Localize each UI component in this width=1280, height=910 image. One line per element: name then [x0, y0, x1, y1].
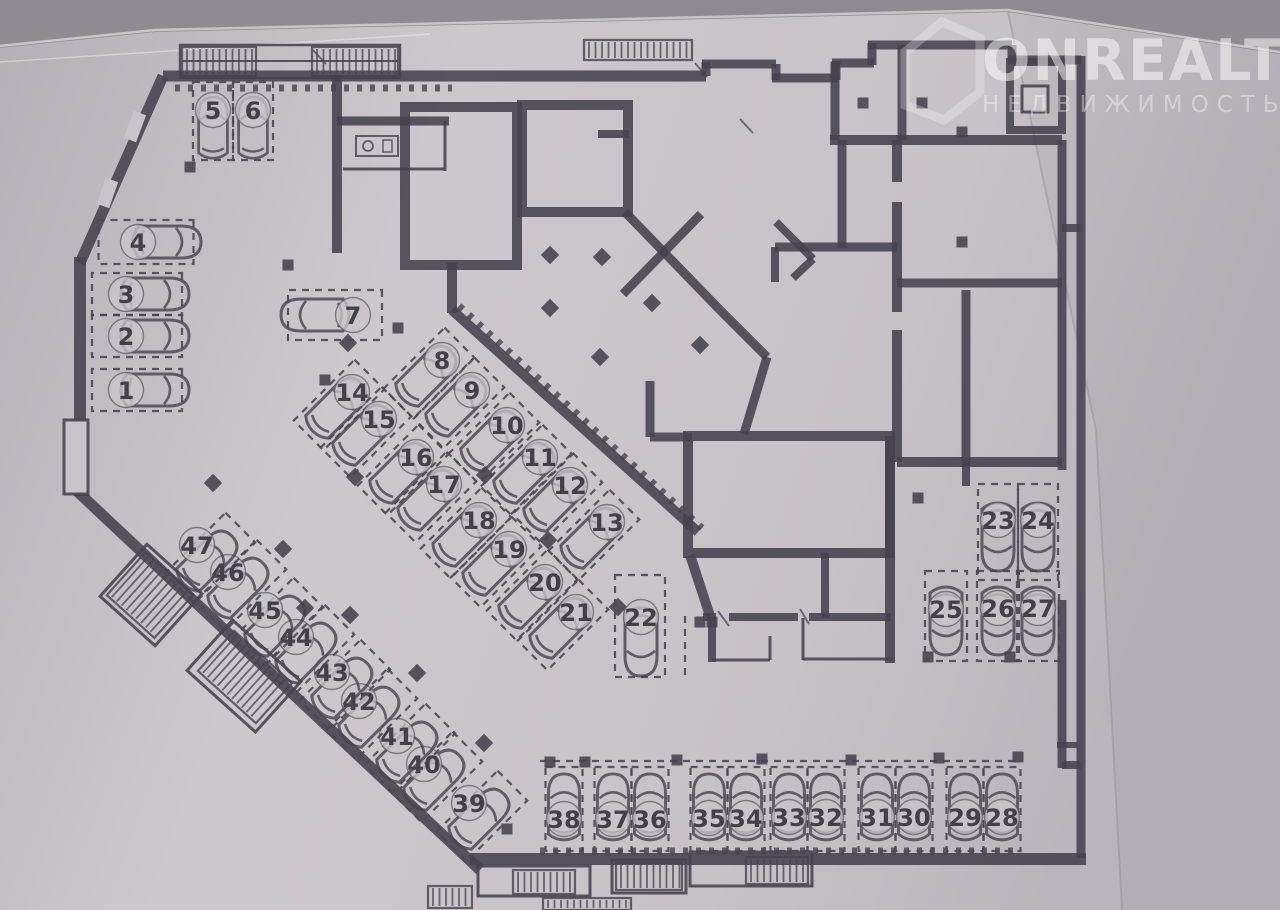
column-square-icon: [185, 162, 196, 173]
space-number: 30: [897, 804, 930, 832]
column-square-icon: [913, 493, 924, 504]
space-number: 45: [248, 597, 281, 625]
space-number: 21: [559, 599, 592, 627]
space-number: 33: [772, 804, 805, 832]
space-number: 23: [981, 507, 1014, 535]
space-number: 34: [729, 805, 762, 833]
space-number: 10: [490, 412, 523, 440]
column-square-icon: [707, 617, 718, 628]
space-number: 40: [407, 751, 440, 779]
space-number: 15: [362, 406, 395, 434]
column-square-icon: [858, 98, 869, 109]
space-number: 38: [547, 806, 580, 834]
watermark-subtitle: НЕДВИЖИМОСТЬ: [982, 92, 1280, 118]
space-number: 35: [692, 805, 725, 833]
stairs-icon: [182, 47, 256, 76]
column-square-icon: [545, 757, 556, 768]
door-opening: [103, 180, 112, 206]
column-square-icon: [672, 755, 683, 766]
column-square-icon: [757, 754, 768, 765]
room-outline: [64, 420, 88, 494]
column-square-icon: [934, 753, 945, 764]
space-number: 39: [452, 790, 485, 818]
space-number: 27: [1021, 595, 1054, 623]
space-number: 29: [948, 804, 981, 832]
space-number: 28: [985, 804, 1018, 832]
space-number: 41: [380, 723, 413, 751]
space-number: 5: [205, 97, 222, 125]
column-square-icon: [283, 260, 294, 271]
space-number: 8: [434, 347, 451, 375]
space-number: 12: [553, 472, 586, 500]
space-number: 16: [399, 444, 432, 472]
watermark-brand: ONREALT: [982, 28, 1280, 94]
space-number: 25: [929, 596, 962, 624]
space-number: 19: [492, 536, 525, 564]
space-number: 11: [523, 444, 556, 472]
floor-plan-canvas: 1234567891011121314151617181920212223242…: [0, 0, 1280, 910]
space-number: 47: [180, 532, 213, 560]
space-number: 32: [809, 804, 842, 832]
space-number: 6: [245, 97, 262, 125]
column-square-icon: [502, 824, 513, 835]
column-square-icon: [1013, 752, 1024, 763]
space-number: 37: [596, 806, 629, 834]
space-number: 14: [335, 379, 368, 407]
column-square-icon: [580, 757, 591, 768]
space-number: 24: [1021, 507, 1054, 535]
space-number: 2: [118, 323, 135, 351]
space-number: 18: [462, 507, 495, 535]
space-number: 13: [590, 509, 623, 537]
column-square-icon: [957, 237, 968, 248]
space-number: 36: [633, 806, 666, 834]
space-number: 9: [464, 377, 481, 405]
space-number: 1: [118, 377, 135, 405]
column-square-icon: [957, 127, 968, 138]
space-number: 20: [528, 569, 561, 597]
space-number: 31: [860, 804, 893, 832]
space-number: 26: [981, 595, 1014, 623]
scanned-floor-plan-photo: 1234567891011121314151617181920212223242…: [0, 0, 1280, 910]
column-square-icon: [320, 375, 331, 386]
space-number: 22: [624, 604, 657, 632]
space-number: 4: [130, 229, 147, 257]
column-square-icon: [846, 755, 857, 766]
space-number: 7: [345, 302, 362, 330]
column-square-icon: [695, 617, 706, 628]
space-number: 3: [118, 281, 135, 309]
column-square-icon: [393, 323, 404, 334]
space-number: 17: [427, 471, 460, 499]
